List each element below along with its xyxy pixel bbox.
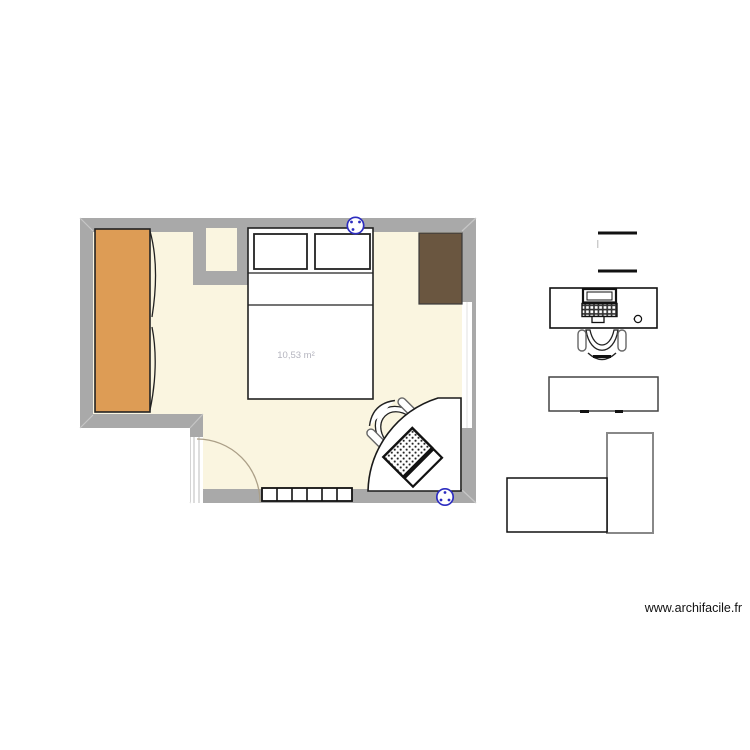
power-outlet-top[interactable] [347, 217, 363, 233]
wall-bottom-left[interactable] [80, 414, 203, 428]
office-chair[interactable] [578, 330, 626, 360]
double-bed[interactable] [248, 228, 373, 399]
mug-icon [634, 315, 641, 322]
pillow [254, 234, 307, 269]
radiator[interactable] [262, 488, 352, 501]
l-shaped-desk[interactable] [507, 433, 653, 533]
side-table[interactable] [549, 377, 658, 413]
floor-plan-canvas: 10,53 m² www.archifacile.fr [0, 0, 750, 750]
window-symbol[interactable] [597, 232, 637, 273]
watermark: www.archifacile.fr [644, 601, 742, 615]
pillow [315, 234, 370, 269]
laptop-trackpad [592, 317, 604, 323]
laptop-keyboard [582, 304, 617, 317]
wall-shelf[interactable] [419, 233, 462, 304]
wall-left[interactable] [80, 218, 93, 428]
outlet-icon [347, 217, 363, 233]
l-desk-horizontal[interactable] [507, 478, 607, 532]
window[interactable] [462, 302, 472, 428]
desk-with-laptop[interactable] [550, 288, 657, 328]
power-outlet-bottom[interactable] [437, 489, 453, 505]
closet-nook-floor [206, 228, 237, 271]
l-desk-vertical[interactable] [607, 433, 653, 533]
chair-armrest [618, 330, 626, 351]
chair-armrest [578, 330, 586, 351]
room-area-label: 10,53 m² [277, 350, 315, 361]
wardrobe[interactable] [95, 229, 156, 412]
